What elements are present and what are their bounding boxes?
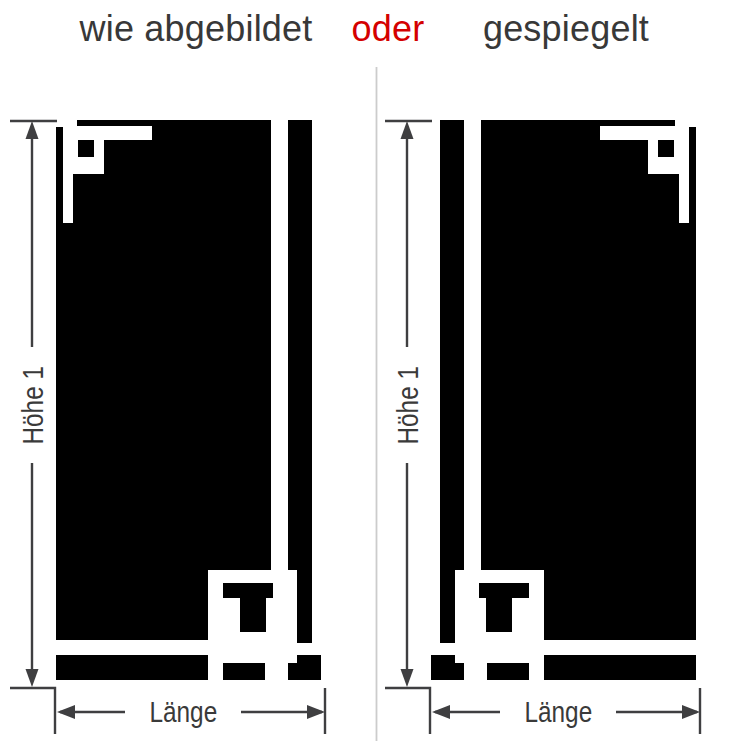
title-connector-oder: oder (352, 8, 425, 50)
length-dimension-label-right: Länge (500, 695, 616, 729)
height-dimension-text-right: Höhe 1 (392, 366, 425, 445)
length-dimension-text-right: Länge (524, 696, 592, 729)
decal-right-mirrored (431, 120, 696, 680)
diagram-canvas (0, 0, 750, 750)
orientation-options-figure: wie abgebildet oder gespiegelt (0, 0, 750, 750)
decal-left-as-depicted (56, 120, 321, 680)
height-dimension-text-left: Höhe 1 (17, 366, 50, 445)
height-dimension-label-right: Höhe 1 (391, 347, 425, 463)
title-option-as-depicted: wie abgebildet (80, 8, 313, 50)
title-option-mirrored: gespiegelt (483, 8, 649, 50)
height-dimension-label-left: Höhe 1 (16, 347, 50, 463)
length-dimension-label-left: Länge (125, 695, 241, 729)
length-dimension-text-left: Länge (149, 696, 217, 729)
